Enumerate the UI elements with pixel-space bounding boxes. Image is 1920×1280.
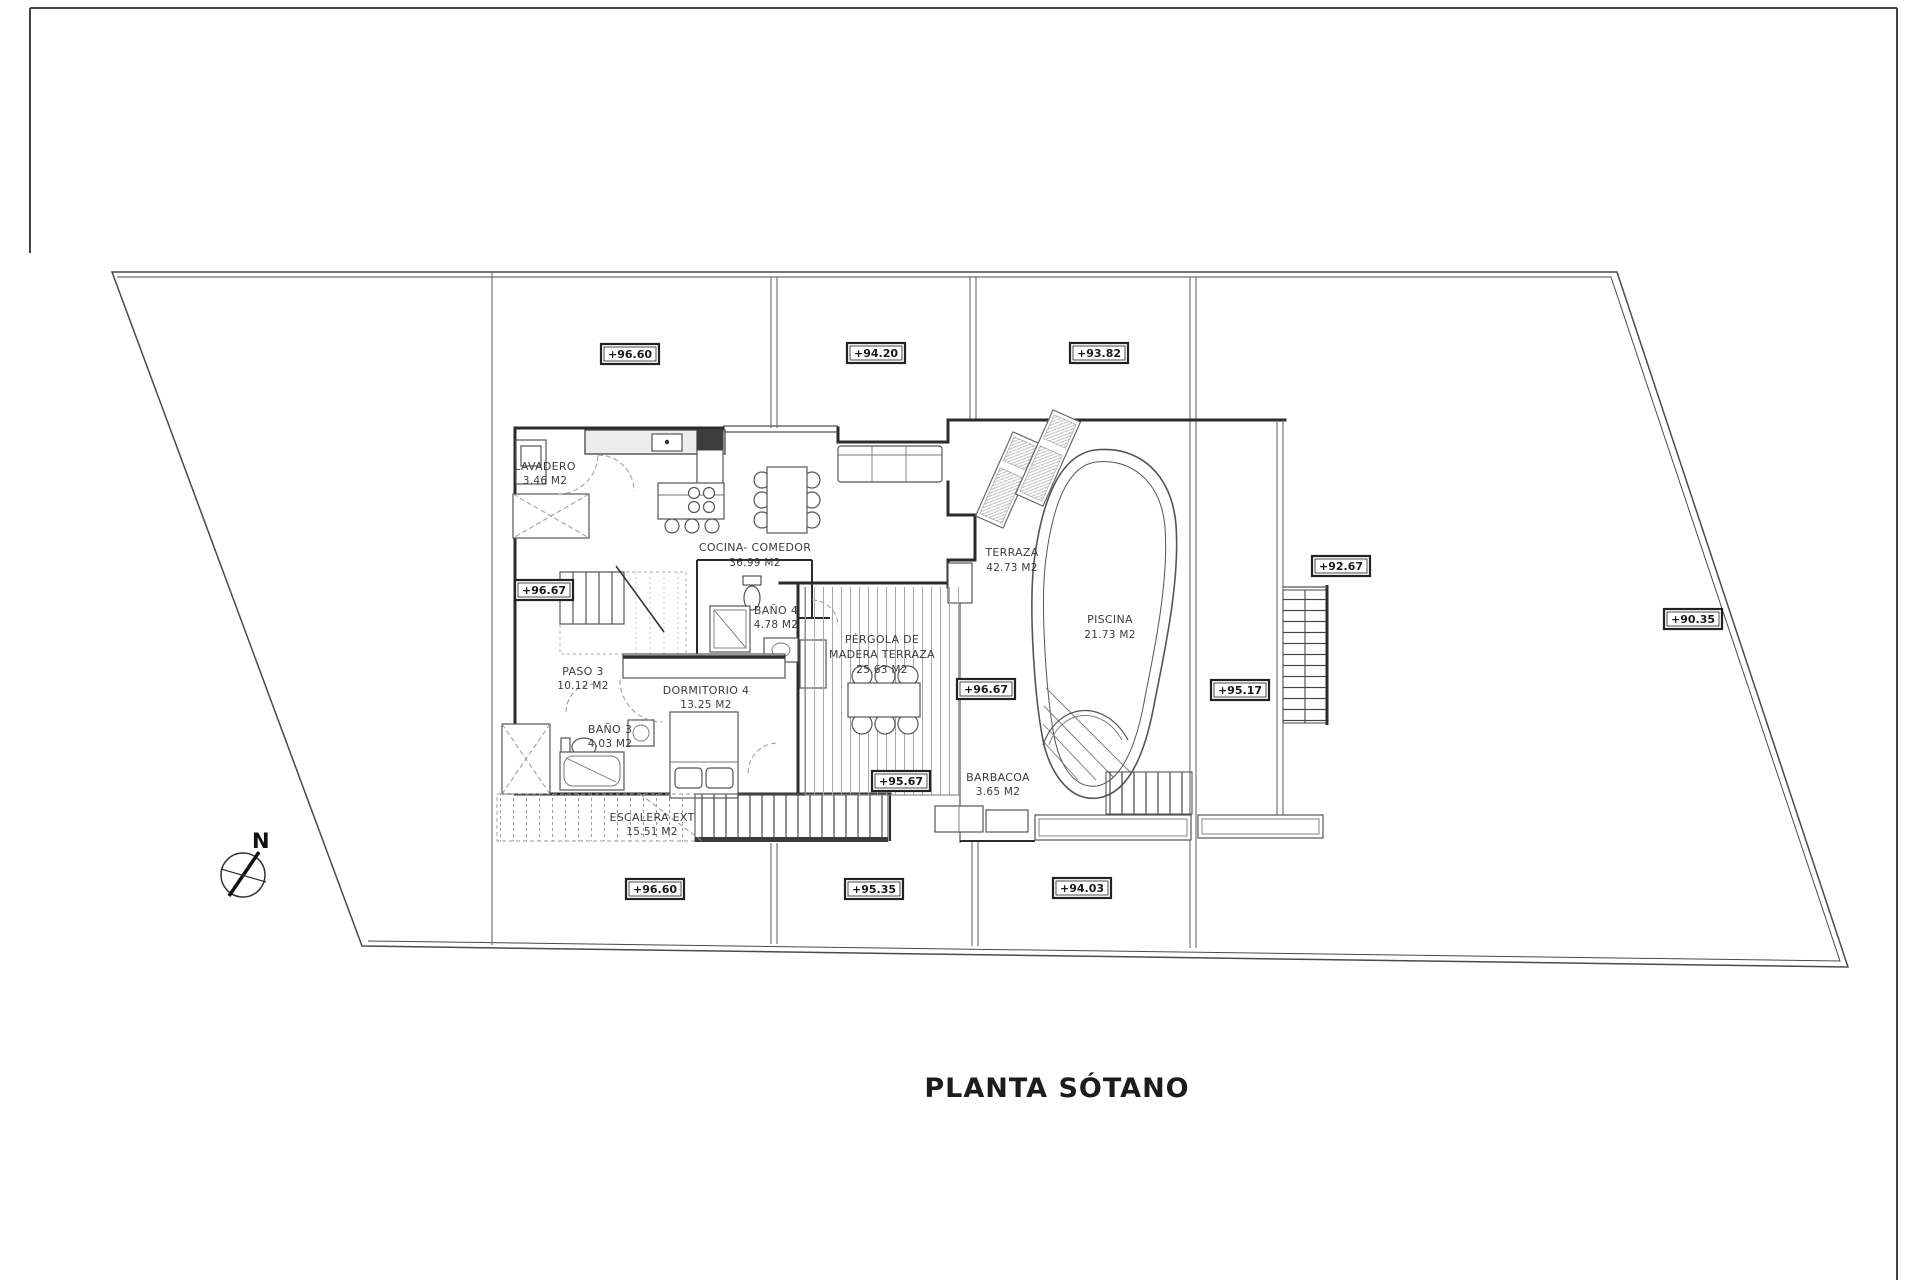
svg-text:MADERA TERRAZA: MADERA TERRAZA (829, 648, 935, 661)
garden-stair (1283, 585, 1327, 725)
svg-text:10.12 M2: 10.12 M2 (557, 680, 609, 692)
svg-text:+94.03: +94.03 (1060, 882, 1104, 895)
room-label-bano3: BAÑO 3 4.03 M2 (588, 723, 633, 750)
level-marker-top-left: +96.60 (601, 344, 659, 364)
level-marker-bottom-right: +94.03 (1053, 878, 1111, 898)
room-label-barbacoa: BARBACOA 3.65 M2 (966, 771, 1030, 798)
drawing-sheet: N LAVADERO 3.46 M2 COCINA- COMEDOR 36.99… (0, 0, 1920, 1280)
level-marker-stair-int: +96.67 (515, 580, 573, 600)
svg-text:+95.17: +95.17 (1218, 684, 1262, 697)
svg-text:PISCINA: PISCINA (1087, 613, 1133, 626)
level-marker-terrace-mid: +96.67 (957, 679, 1015, 699)
svg-text:42.73 M2: 42.73 M2 (986, 562, 1038, 574)
storage-box-laundry (513, 494, 589, 538)
north-label: N (252, 829, 270, 853)
svg-text:3.46 M2: 3.46 M2 (523, 475, 568, 487)
level-marker-pergola-low: +95.67 (872, 771, 930, 791)
svg-text:+96.60: +96.60 (633, 883, 677, 896)
room-label-bano4: BAÑO 4 4.78 M2 (754, 604, 799, 631)
dining-table (754, 467, 820, 533)
svg-text:4.03 M2: 4.03 M2 (588, 738, 633, 750)
svg-text:+90.35: +90.35 (1671, 613, 1715, 626)
svg-text:+92.67: +92.67 (1319, 560, 1363, 573)
planters (1035, 815, 1323, 840)
svg-text:DORMITORIO 4: DORMITORIO 4 (663, 684, 750, 697)
kitchen-island (658, 483, 724, 533)
svg-text:BARBACOA: BARBACOA (966, 771, 1030, 784)
storage-box-lower (502, 724, 550, 794)
svg-text:+95.67: +95.67 (879, 775, 923, 788)
level-marker-top-mid: +94.20 (847, 343, 905, 363)
svg-text:+96.60: +96.60 (608, 348, 652, 361)
wardrobe (623, 654, 785, 678)
level-marker-bottom-left: +96.60 (626, 879, 684, 899)
interior-stair (560, 566, 686, 654)
room-label-dormitorio4: DORMITORIO 4 13.25 M2 (663, 684, 750, 711)
svg-text:PÉRGOLA DE: PÉRGOLA DE (845, 633, 919, 646)
level-marker-bottom-mid: +95.35 (845, 879, 903, 899)
level-marker-top-right: +93.82 (1070, 343, 1128, 363)
svg-text:3.65 M2: 3.65 M2 (976, 786, 1021, 798)
svg-text:13.25 M2: 13.25 M2 (680, 699, 732, 711)
svg-text:+94.20: +94.20 (854, 347, 898, 360)
svg-text:BAÑO 4: BAÑO 4 (754, 604, 798, 617)
svg-text:+93.82: +93.82 (1077, 347, 1121, 360)
svg-text:+96.67: +96.67 (522, 584, 566, 597)
floorplan-svg: N LAVADERO 3.46 M2 COCINA- COMEDOR 36.99… (0, 0, 1920, 1280)
svg-text:TERRAZA: TERRAZA (984, 546, 1038, 559)
bed (670, 712, 738, 798)
svg-text:21.73 M2: 21.73 M2 (1084, 629, 1136, 641)
sofa (838, 446, 942, 482)
level-marker-far-right: +90.35 (1664, 609, 1722, 629)
room-label-cocina: COCINA- COMEDOR 36.99 M2 (699, 541, 811, 569)
north-compass: N (221, 829, 270, 897)
svg-text:36.99 M2: 36.99 M2 (729, 557, 781, 569)
svg-text:15.51 M2: 15.51 M2 (626, 826, 678, 838)
svg-text:+95.35: +95.35 (852, 883, 896, 896)
svg-text:ESCALERA EXT: ESCALERA EXT (609, 811, 694, 824)
plot-boundary (112, 272, 1848, 967)
room-label-terraza: TERRAZA 42.73 M2 (984, 546, 1038, 574)
svg-text:PASO 3: PASO 3 (562, 665, 603, 678)
svg-text:BAÑO 3: BAÑO 3 (588, 723, 632, 736)
level-marker-right-upper: +92.67 (1312, 556, 1370, 576)
svg-text:+96.67: +96.67 (964, 683, 1008, 696)
floor-title: PLANTA SÓTANO (924, 1072, 1189, 1104)
room-label-paso3: PASO 3 10.12 M2 (557, 665, 609, 692)
svg-text:LAVADERO: LAVADERO (514, 460, 576, 473)
svg-text:25.63 M2: 25.63 M2 (856, 664, 908, 676)
level-marker-pool-right: +95.17 (1211, 680, 1269, 700)
svg-text:4.78 M2: 4.78 M2 (754, 619, 799, 631)
pergola-table (848, 666, 920, 734)
svg-text:COCINA- COMEDOR: COCINA- COMEDOR (699, 541, 811, 554)
